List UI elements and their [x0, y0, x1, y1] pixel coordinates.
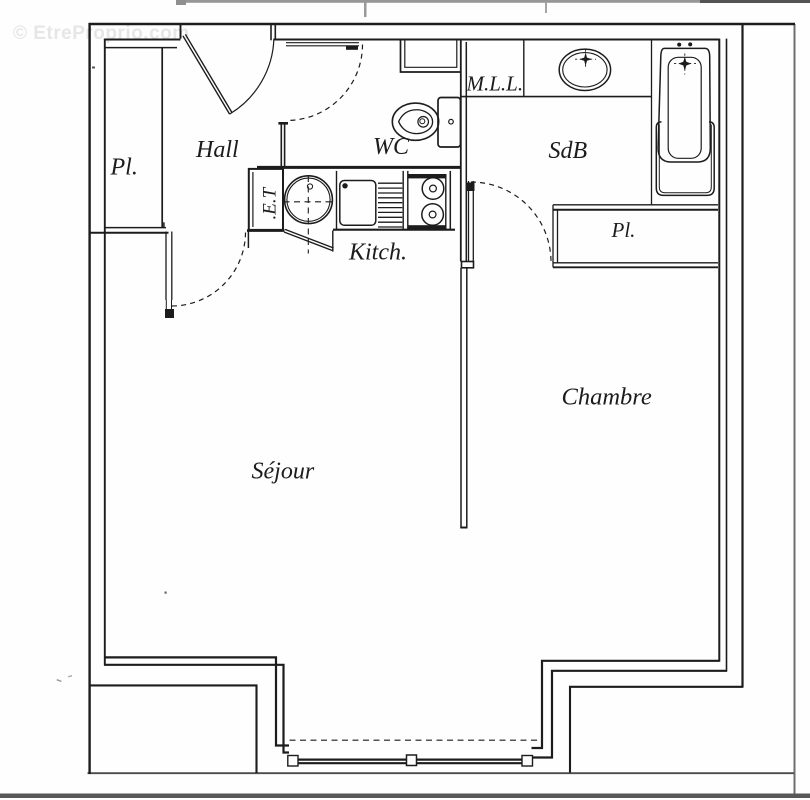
svg-text:.E.T: .E.T [260, 186, 281, 219]
svg-text:Chambre: Chambre [562, 384, 652, 411]
svg-text:Kitch.: Kitch. [348, 239, 407, 265]
svg-text:Pl.: Pl. [611, 218, 636, 242]
svg-text:© EtreProprio.com: © EtreProprio.com [13, 23, 190, 44]
svg-text:WC: WC [373, 134, 410, 160]
svg-text:M.L.L.: M.L.L. [466, 71, 524, 95]
svg-text:Pl.: Pl. [110, 155, 138, 181]
svg-text:Séjour: Séjour [252, 459, 315, 485]
svg-text:SdB: SdB [549, 138, 588, 164]
svg-text:Hall: Hall [195, 137, 239, 163]
